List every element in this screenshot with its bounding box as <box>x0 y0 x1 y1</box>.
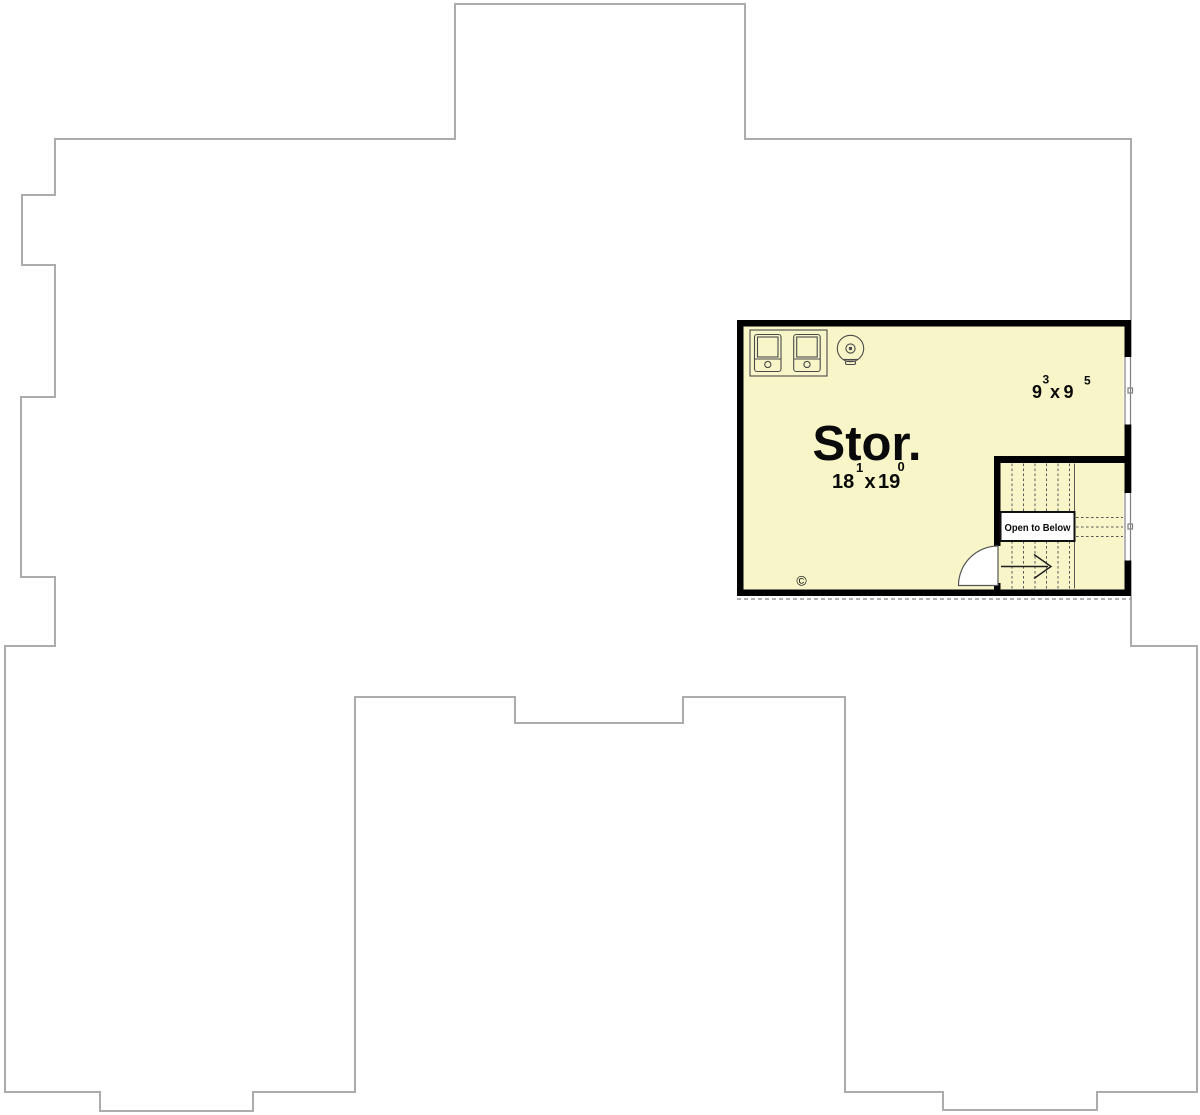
window-lower <box>1124 493 1133 561</box>
floor-plan-drawing: Open to Below DN <box>0 0 1200 1115</box>
svg-text:9: 9 <box>1064 382 1074 402</box>
svg-text:19: 19 <box>878 471 900 493</box>
wall-left <box>737 320 744 596</box>
storage-room: Open to Below DN <box>737 320 1133 599</box>
stair-wall-top <box>994 456 1131 463</box>
svg-text:5: 5 <box>1084 374 1091 388</box>
room-name-label: Stor. <box>813 417 922 471</box>
svg-text:x: x <box>1050 382 1060 402</box>
open-to-below-label: Open to Below <box>1005 522 1072 534</box>
wall-top <box>737 320 1131 327</box>
svg-text:3: 3 <box>1043 373 1050 387</box>
floor-plan-page: Open to Below DN <box>0 0 1200 1115</box>
svg-text:x: x <box>865 471 876 493</box>
svg-text:9: 9 <box>1032 382 1042 402</box>
window-upper <box>1124 357 1133 425</box>
svg-text:18: 18 <box>832 471 854 493</box>
wall-bottom <box>737 590 1131 597</box>
svg-text:1: 1 <box>856 460 863 475</box>
copyright-symbol: © <box>796 573 807 589</box>
svg-text:0: 0 <box>898 459 905 474</box>
